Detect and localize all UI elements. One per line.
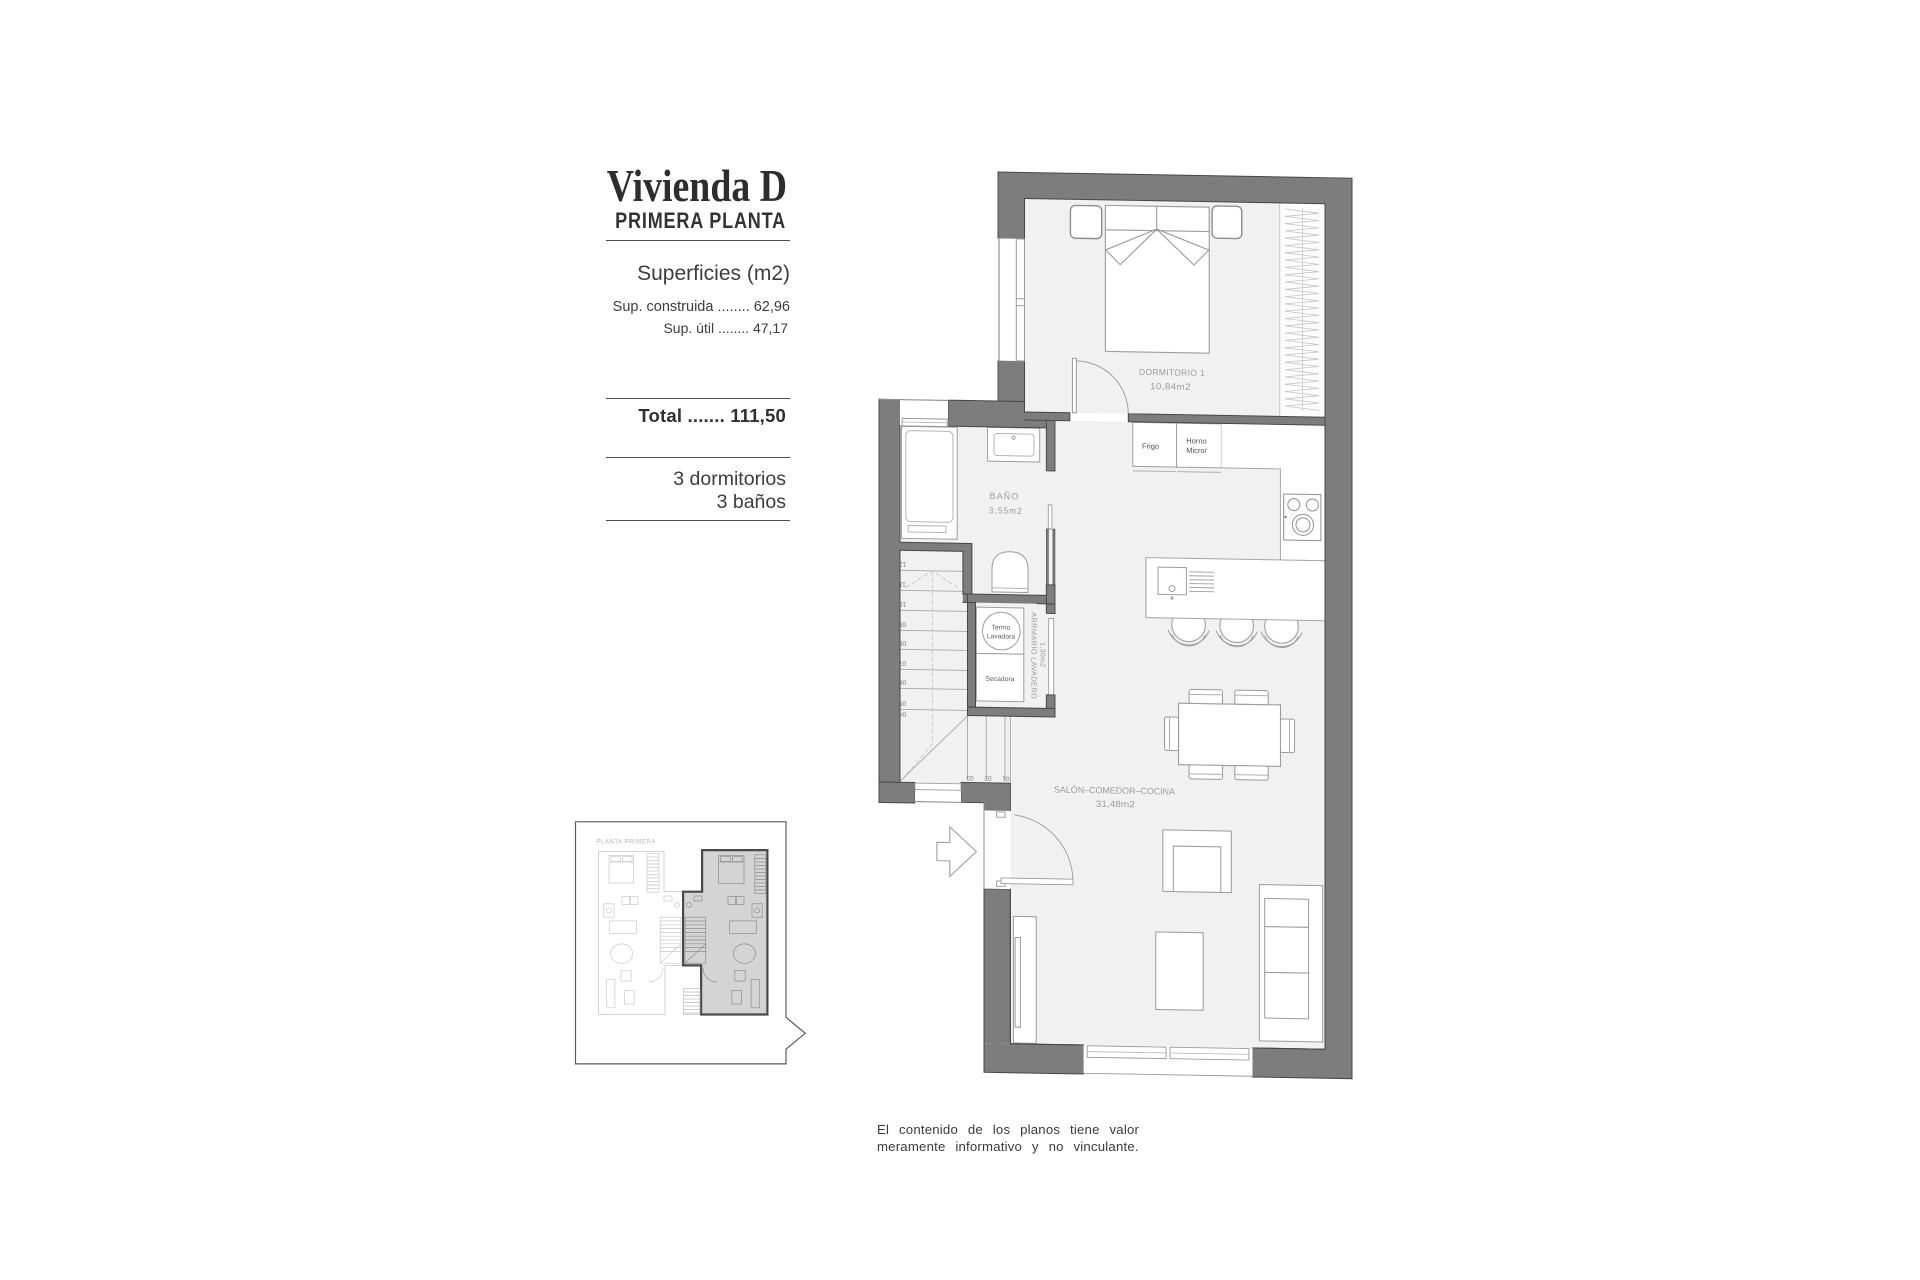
svg-text:Lavadora: Lavadora [987,633,1016,640]
svg-text:03: 03 [966,774,974,781]
svg-text:31,48m2: 31,48m2 [1096,799,1135,810]
svg-text:Secadora: Secadora [985,676,1014,684]
svg-text:Termo: Termo [992,624,1011,631]
svg-text:3,55m2: 3,55m2 [989,505,1023,516]
svg-text:1,30m2: 1,30m2 [1039,642,1046,667]
svg-text:ARRMARIO LAVADERO: ARRMARIO LAVADERO [1030,612,1039,699]
svg-text:Micro/: Micro/ [1186,446,1207,455]
svg-text:01: 01 [1002,775,1010,782]
svg-text:SALÓN–COMEDOR–COCINA: SALÓN–COMEDOR–COCINA [1054,784,1175,796]
svg-text:PLANTA PRIMERA: PLANTA PRIMERA [597,840,656,846]
svg-text:Frigo: Frigo [1142,442,1159,451]
svg-text:BAÑO: BAÑO [990,491,1020,502]
svg-text:Horno: Horno [1186,436,1206,445]
svg-text:10,84m2: 10,84m2 [1150,381,1191,392]
svg-text:DORMITORIO 1: DORMITORIO 1 [1139,367,1205,378]
svg-text:02: 02 [984,774,992,781]
